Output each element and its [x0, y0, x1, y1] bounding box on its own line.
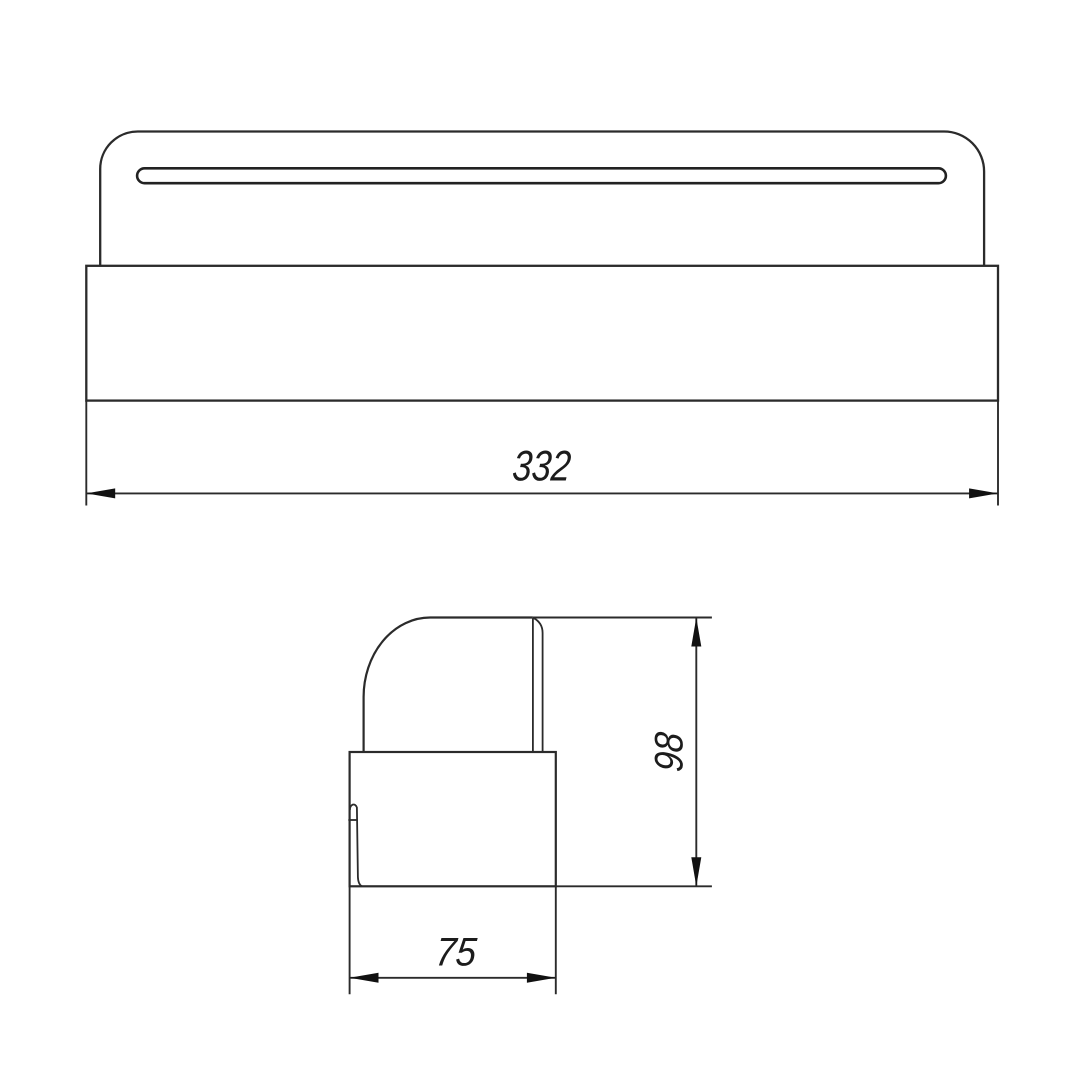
svg-text:332: 332 — [511, 443, 573, 490]
svg-text:98: 98 — [648, 730, 692, 773]
svg-text:75: 75 — [434, 930, 479, 975]
